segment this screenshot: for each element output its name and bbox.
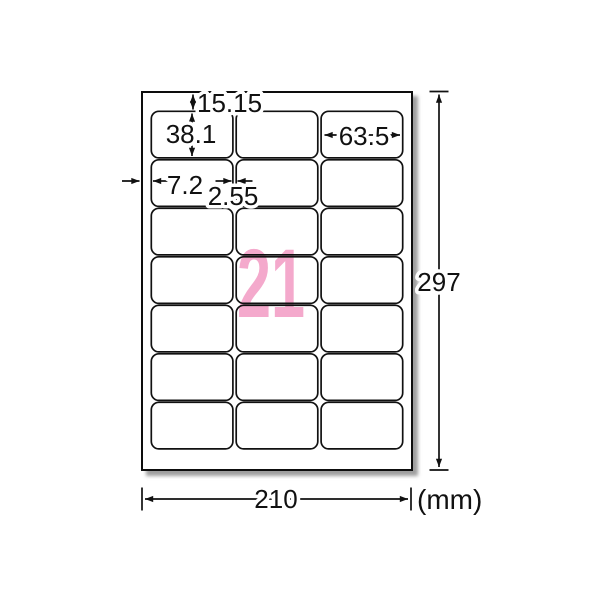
label-width-value: 63.5 <box>339 121 390 151</box>
sheet-width-value: 210 <box>254 484 297 514</box>
label-height-value: 38.1 <box>166 119 217 149</box>
top-margin-value: 15.15 <box>197 88 262 118</box>
diagram-canvas: 21 15.15 38. <box>0 0 600 600</box>
label-count-text: 21 <box>237 229 305 338</box>
label-sheet-diagram: 21 15.15 38. <box>0 0 600 600</box>
sheet-height-value: 297 <box>417 267 460 297</box>
side-margin-value: 7.2 <box>167 170 203 200</box>
unit-label: (mm) <box>417 484 482 515</box>
column-gap-value: 2.55 <box>208 181 259 211</box>
